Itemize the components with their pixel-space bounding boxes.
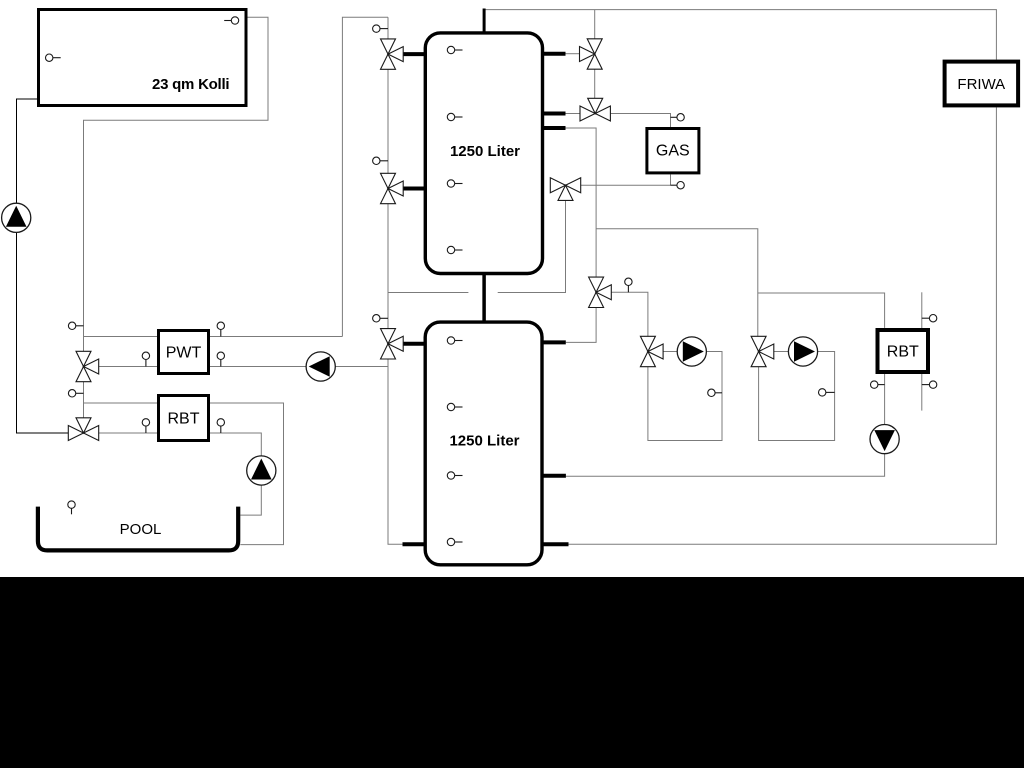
svg-text:RBT: RBT <box>168 411 200 428</box>
svg-text:23 qm Kolli: 23 qm Kolli <box>152 76 229 93</box>
svg-text:RBT: RBT <box>887 344 919 361</box>
svg-text:POOL: POOL <box>120 521 162 538</box>
svg-text:1250 Liter: 1250 Liter <box>450 143 520 160</box>
svg-text:1250 Liter: 1250 Liter <box>449 433 519 450</box>
svg-text:GAS: GAS <box>656 143 690 160</box>
svg-text:FRIWA: FRIWA <box>957 76 1005 93</box>
svg-text:PWT: PWT <box>166 345 202 362</box>
